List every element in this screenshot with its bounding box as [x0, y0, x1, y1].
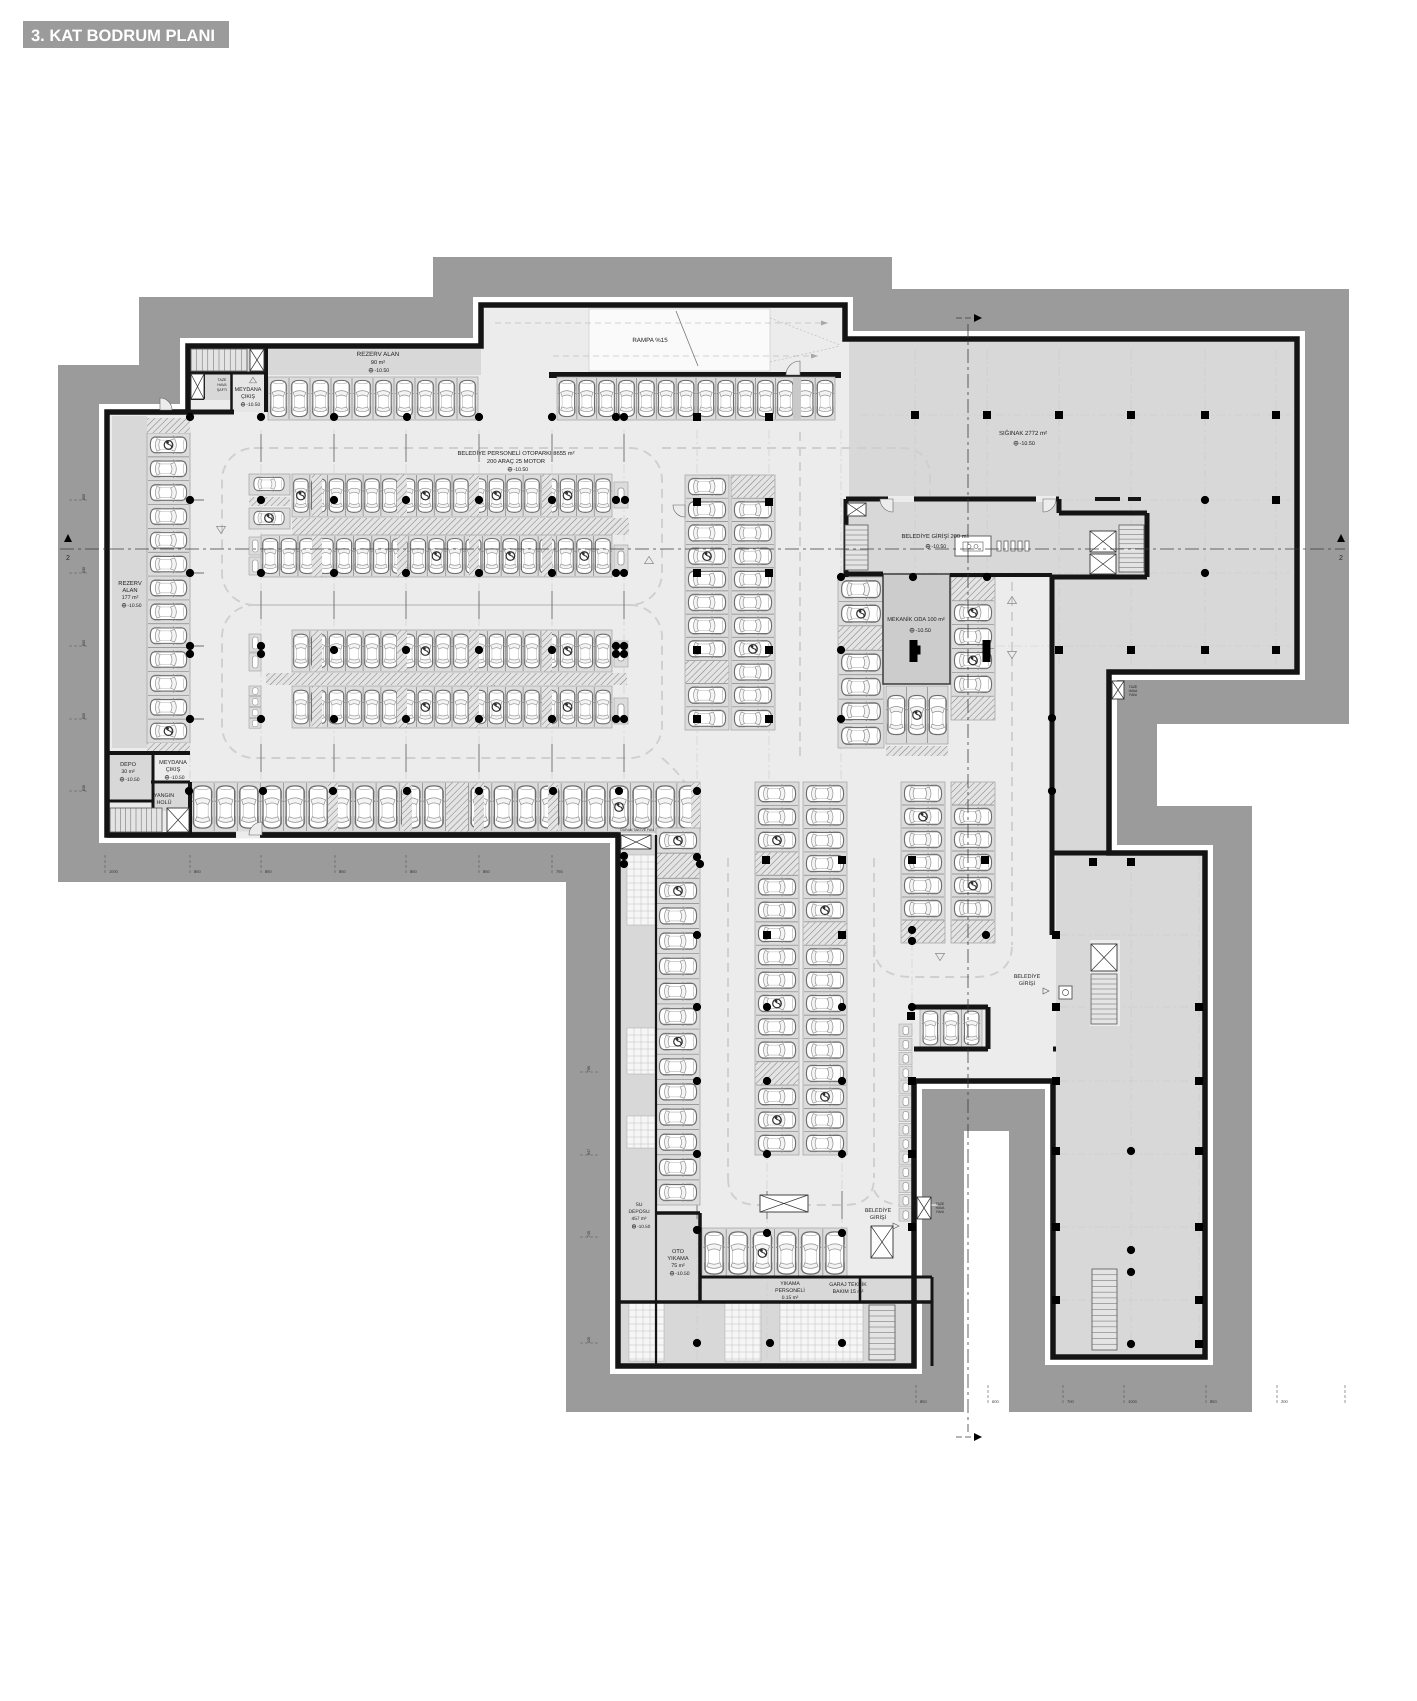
svg-text:DEPOSU: DEPOSU [628, 1209, 650, 1215]
svg-text:-10.50: -10.50 [931, 544, 946, 550]
svg-text:-10.50: -10.50 [246, 402, 260, 408]
svg-text:DEPO: DEPO [120, 762, 137, 768]
svg-text:850: 850 [339, 869, 346, 874]
svg-text:0.15 m²: 0.15 m² [782, 1295, 799, 1301]
svg-text:3. KAT BODRUM PLANI: 3. KAT BODRUM PLANI [31, 27, 215, 45]
svg-text:740: 740 [587, 1231, 591, 1237]
svg-text:GİRİŞİ: GİRİŞİ [1019, 980, 1035, 987]
svg-text:GİRİŞİ: GİRİŞİ [870, 1214, 886, 1221]
svg-text:RAMPA %15: RAMPA %15 [632, 337, 668, 344]
svg-text:YIKAMA: YIKAMA [780, 1281, 800, 1287]
svg-text:FANI: FANI [1129, 693, 1137, 697]
svg-text:PERSONELİ: PERSONELİ [775, 1287, 805, 1294]
svg-text:FANI: FANI [936, 1210, 944, 1214]
svg-text:-10.50: -10.50 [637, 1224, 650, 1229]
svg-text:850: 850 [194, 869, 201, 874]
svg-text:830: 830 [82, 785, 86, 791]
svg-text:SIĞINAK 2772 m²: SIĞINAK 2772 m² [999, 429, 1047, 437]
svg-text:700: 700 [1067, 1399, 1074, 1404]
svg-text:200: 200 [1281, 1399, 1288, 1404]
svg-text:850: 850 [410, 869, 417, 874]
svg-text:850: 850 [483, 869, 490, 874]
svg-text:GARAJ TEKNİK: GARAJ TEKNİK [829, 1281, 867, 1288]
svg-text:BELEDİYE GİRİŞİ 200 m²: BELEDİYE GİRİŞİ 200 m² [901, 532, 968, 540]
svg-text:947: 947 [587, 1149, 591, 1155]
svg-text:1000: 1000 [109, 869, 119, 874]
svg-text:800: 800 [82, 713, 86, 719]
svg-text:REZERV ALAN: REZERV ALAN [357, 351, 400, 358]
svg-text:-10.50: -10.50 [127, 603, 141, 609]
svg-text:MEYDANA: MEYDANA [235, 387, 262, 393]
svg-text:-10.50: -10.50 [170, 775, 184, 781]
svg-text:440: 440 [587, 1337, 591, 1343]
svg-text:HOLÜ: HOLÜ [157, 799, 172, 806]
svg-text:ALAN: ALAN [122, 588, 137, 594]
svg-text:755: 755 [556, 869, 563, 874]
svg-text:457 m²: 457 m² [632, 1216, 647, 1222]
svg-text:MEYDANA: MEYDANA [159, 760, 187, 766]
svg-text:REZERV: REZERV [118, 581, 142, 587]
svg-text:30 m²: 30 m² [121, 769, 135, 775]
svg-text:SU: SU [636, 1202, 643, 1208]
svg-text:850: 850 [920, 1399, 927, 1404]
svg-text:HAVA: HAVA [217, 383, 227, 387]
svg-text:600: 600 [992, 1399, 999, 1404]
svg-text:2: 2 [66, 555, 70, 562]
svg-text:850: 850 [1210, 1399, 1217, 1404]
svg-text:90 m²: 90 m² [371, 360, 385, 366]
svg-text:MEKANİK ODA 100 m²: MEKANİK ODA 100 m² [887, 616, 945, 623]
svg-text:-10.50: -10.50 [916, 628, 931, 634]
svg-text:ŞAFTI: ŞAFTI [217, 388, 227, 392]
svg-text:2: 2 [1339, 555, 1343, 562]
svg-text:BELEDİYE: BELEDİYE [1014, 973, 1041, 980]
svg-text:BELEDİYE PERSONELİ OTOPARKI 86: BELEDİYE PERSONELİ OTOPARKI 8655 m² [457, 449, 574, 457]
svg-text:ÇIKIŞ: ÇIKIŞ [166, 767, 181, 773]
svg-text:-10.50: -10.50 [1020, 441, 1035, 447]
svg-text:75 m²: 75 m² [671, 1263, 685, 1269]
svg-text:BELEDİYE: BELEDİYE [865, 1207, 892, 1214]
svg-text:800: 800 [82, 640, 86, 646]
svg-text:ÇIKIŞ: ÇIKIŞ [241, 394, 255, 400]
svg-text:BAKIM 15 m²: BAKIM 15 m² [833, 1289, 864, 1295]
svg-text:1000: 1000 [1128, 1399, 1138, 1404]
svg-text:765: 765 [587, 1066, 591, 1072]
svg-text:YIKAMA: YIKAMA [667, 1256, 688, 1262]
svg-text:830: 830 [82, 567, 86, 573]
svg-text:800: 800 [82, 494, 86, 500]
svg-text:-10.50: -10.50 [675, 1271, 689, 1277]
svg-text:-10.50: -10.50 [374, 368, 389, 374]
svg-text:YANGIN: YANGIN [154, 793, 174, 799]
svg-text:-10.50: -10.50 [125, 777, 139, 783]
svg-text:850: 850 [265, 869, 272, 874]
svg-text:TAZE: TAZE [218, 378, 228, 382]
svg-text:177 m²: 177 m² [122, 595, 139, 601]
svg-text:200 ARAÇ 25 MOTOR: 200 ARAÇ 25 MOTOR [487, 458, 545, 465]
svg-text:-10.50: -10.50 [513, 467, 528, 473]
svg-text:DURAN TAKİ.VE FAN: DURAN TAKİ.VE FAN [620, 828, 654, 832]
svg-text:OTO: OTO [672, 1249, 685, 1255]
